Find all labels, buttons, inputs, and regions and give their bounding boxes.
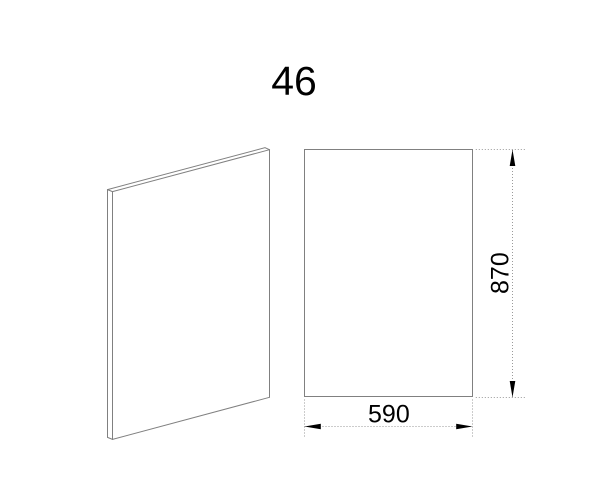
svg-text:870: 870 <box>486 252 514 294</box>
svg-text:590: 590 <box>368 400 410 428</box>
svg-text:46: 46 <box>271 58 317 104</box>
